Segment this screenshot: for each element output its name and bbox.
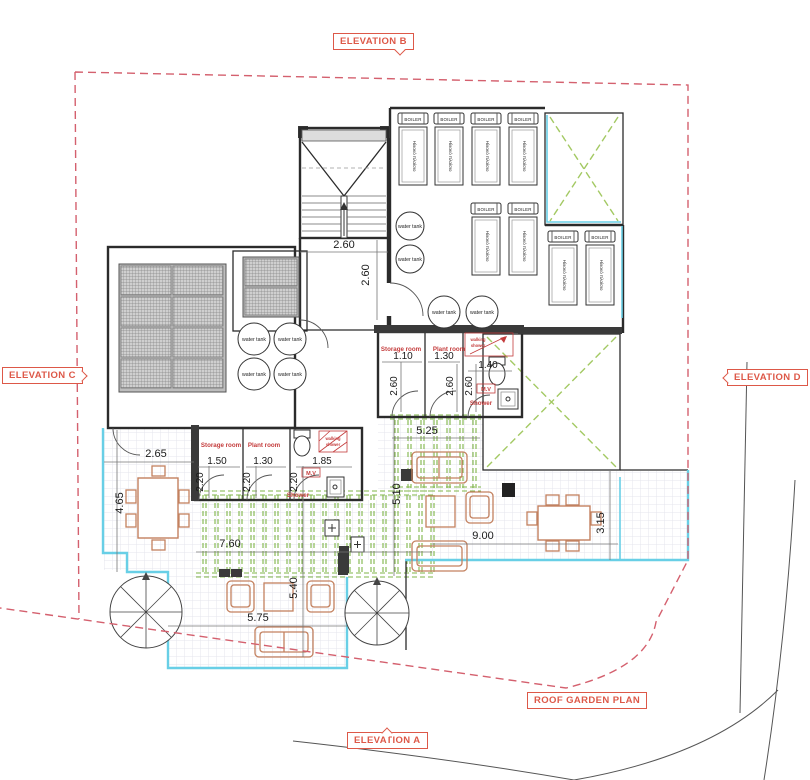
plan-title-label: ROOF GARDEN PLAN [534, 695, 640, 706]
svg-text:walking: walking [324, 436, 341, 441]
dim-f-bath: 1.40 [478, 360, 498, 371]
svg-text:BOILER: BOILER [514, 207, 531, 212]
water-tank: water tank [396, 212, 424, 240]
water-tank: water tank [428, 296, 460, 328]
dim-g-depth: 2.20 [289, 472, 300, 492]
dim-terrace-west-width: 2.65 [145, 448, 166, 460]
dim-terrace-south-depth: 5.40 [288, 577, 300, 598]
elevation-c-label: ELEVATION C [9, 370, 76, 381]
svg-text:BOILER: BOILER [404, 117, 421, 122]
boiler-unit: BOILERΗλιακό πλαίσιο [471, 113, 501, 185]
svg-text:BOILER: BOILER [514, 117, 531, 122]
svg-text:shower: shower [326, 442, 341, 447]
plan-title: ROOF GARDEN PLAN [527, 692, 647, 709]
svg-text:Ηλιακό πλαίσιο: Ηλιακό πλαίσιο [448, 141, 454, 172]
svg-text:water tank: water tank [278, 337, 302, 343]
site-road-lines [293, 362, 795, 780]
boiler-unit: BOILERΗλιακό πλαίσιο [471, 203, 501, 275]
elevation-a-marker: ELEVATION A [347, 732, 428, 749]
boiler-unit: BOILERΗλιακό πλαίσιο [548, 231, 578, 305]
water-tank: water tank [238, 323, 270, 355]
svg-text:BOILER: BOILER [554, 235, 571, 240]
svg-text:water tank: water tank [432, 310, 456, 316]
water-tank: water tank [274, 358, 306, 390]
elevation-c-marker: ELEVATION C [2, 367, 83, 384]
staircase [300, 128, 388, 238]
dim-g-plant: 1.30 [253, 456, 273, 467]
elevation-b-label: ELEVATION B [340, 36, 407, 47]
dim-terrace-west-depth: 4.65 [114, 492, 126, 513]
dim-terrace-east-depth: 3.15 [595, 512, 607, 533]
svg-text:Ηλιακό πλαίσιο: Ηλιακό πλαίσιο [485, 141, 491, 172]
walking-shower-box: walking shower [465, 333, 513, 356]
svg-text:water tank: water tank [242, 372, 266, 378]
svg-text:Ηλιακό πλαίσιο: Ηλιακό πλαίσιο [485, 231, 491, 262]
plant-room-label: Plant room [248, 442, 281, 449]
shower-label: Shower [470, 400, 493, 407]
water-tank: water tank [238, 358, 270, 390]
svg-text:Ηλιακό πλαίσιο: Ηλιακό πλαίσιο [562, 260, 568, 291]
svg-text:water tank: water tank [398, 257, 422, 263]
dim-f-depth: 2.60 [464, 376, 475, 396]
svg-text:water tank: water tank [278, 372, 302, 378]
storage-room-label: Storage room [201, 442, 242, 449]
boiler-unit: BOILERΗλιακό πλαίσιο [434, 113, 464, 185]
svg-text:walking: walking [469, 337, 486, 342]
floor-plan-svg: BOILERΗλιακό πλαίσιο BOILERΗλιακό πλαίσι… [0, 0, 810, 780]
water-tank: water tank [396, 245, 424, 273]
dim-g-storage: 1.50 [207, 456, 227, 467]
dim-stair-width: 2.60 [333, 239, 354, 251]
svg-text:water tank: water tank [242, 337, 266, 343]
svg-text:BOILER: BOILER [440, 117, 457, 122]
dim-pergola-south-width: 7.60 [219, 538, 240, 550]
walking-shower-box: walking shower [319, 431, 347, 452]
dim-g-depth: 2.20 [242, 472, 253, 492]
svg-text:shower: shower [471, 343, 486, 348]
dim-f-depth: 2.60 [389, 376, 400, 396]
water-tank: water tank [466, 296, 498, 328]
svg-text:water tank: water tank [398, 224, 422, 230]
plant-room-label: Plant room [433, 346, 466, 353]
svg-text:Ηλιακό πλαίσιο: Ηλιακό πλαίσιο [522, 141, 528, 172]
svg-text:water tank: water tank [470, 310, 494, 316]
storage-room-label: Storage room [381, 346, 422, 353]
boiler-unit: BOILERΗλιακό πλαίσιο [508, 113, 538, 185]
elevation-d-label: ELEVATION D [734, 372, 801, 383]
svg-text:BOILER: BOILER [477, 207, 494, 212]
dim-terrace-east-width: 9.00 [472, 530, 493, 542]
svg-text:Ηλιακό πλαίσιο: Ηλιακό πλαίσιο [599, 260, 605, 291]
spiral-stair-east [345, 577, 409, 645]
dim-pergola-width: 5.25 [416, 425, 437, 437]
elevation-a-label: ELEVATION A [354, 735, 421, 746]
svg-text:BOILER: BOILER [591, 235, 608, 240]
dim-terrace-south-width: 5.75 [247, 612, 268, 624]
mv-label: M.V [481, 387, 491, 393]
svg-text:Ηλιακό πλαίσιο: Ηλιακό πλαίσιο [412, 141, 418, 172]
svg-text:Ηλιακό πλαίσιο: Ηλιακό πλαίσιο [522, 231, 528, 262]
svg-text:BOILER: BOILER [477, 117, 494, 122]
boiler-unit: BOILERΗλιακό πλαίσιο [585, 231, 615, 305]
mv-label: M.V [306, 471, 316, 477]
shower-label: Shower [287, 492, 310, 499]
dim-g-bath: 1.85 [312, 456, 332, 467]
dim-pergola-height: 5.10 [391, 483, 403, 504]
dim-f-depth: 2.60 [445, 376, 456, 396]
boiler-unit: BOILERΗλιακό πλαίσιο [508, 203, 538, 275]
boiler-unit: BOILERΗλιακό πλαίσιο [398, 113, 428, 185]
solar-panel-arrays [119, 257, 299, 392]
dim-g-depth: 2.20 [195, 472, 206, 492]
elevation-d-marker: ELEVATION D [727, 369, 808, 386]
elevation-b-marker: ELEVATION B [333, 33, 414, 50]
water-tank: water tank [274, 323, 306, 355]
boiler-units: BOILERΗλιακό πλαίσιο BOILERΗλιακό πλαίσι… [398, 113, 615, 305]
roof-garden-plan-canvas: BOILERΗλιακό πλαίσιο BOILERΗλιακό πλαίσι… [0, 0, 810, 780]
dim-stair-height: 2.60 [360, 264, 372, 285]
